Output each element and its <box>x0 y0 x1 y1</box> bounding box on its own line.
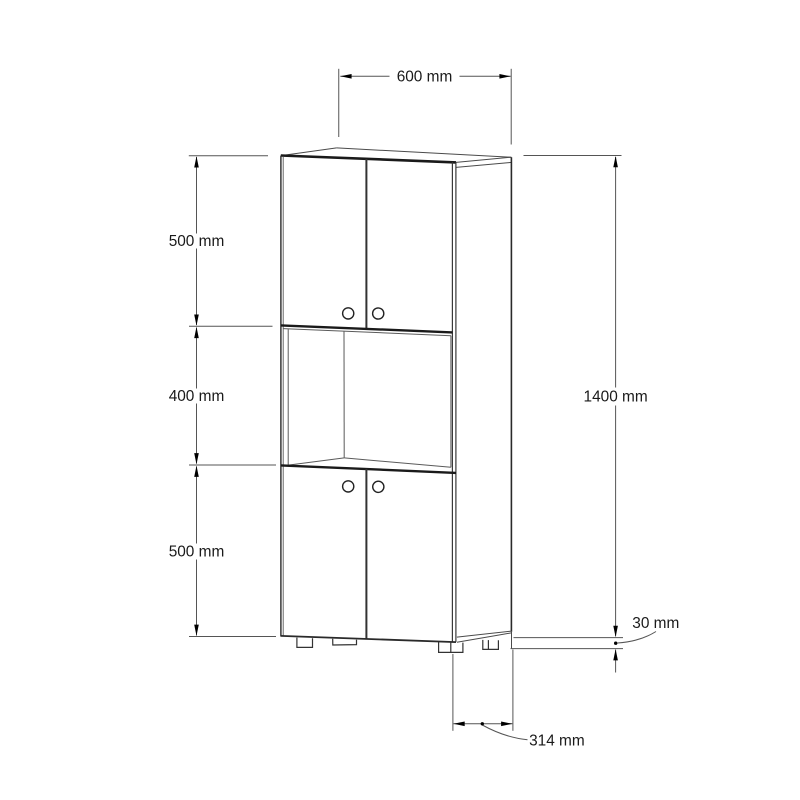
svg-text:600 mm: 600 mm <box>397 69 453 86</box>
svg-text:500 mm: 500 mm <box>169 233 225 250</box>
svg-text:1400 mm: 1400 mm <box>584 389 648 406</box>
svg-text:500 mm: 500 mm <box>169 544 225 561</box>
svg-text:400 mm: 400 mm <box>169 388 225 405</box>
svg-text:314 mm: 314 mm <box>529 733 585 750</box>
svg-text:30 mm: 30 mm <box>632 615 679 632</box>
